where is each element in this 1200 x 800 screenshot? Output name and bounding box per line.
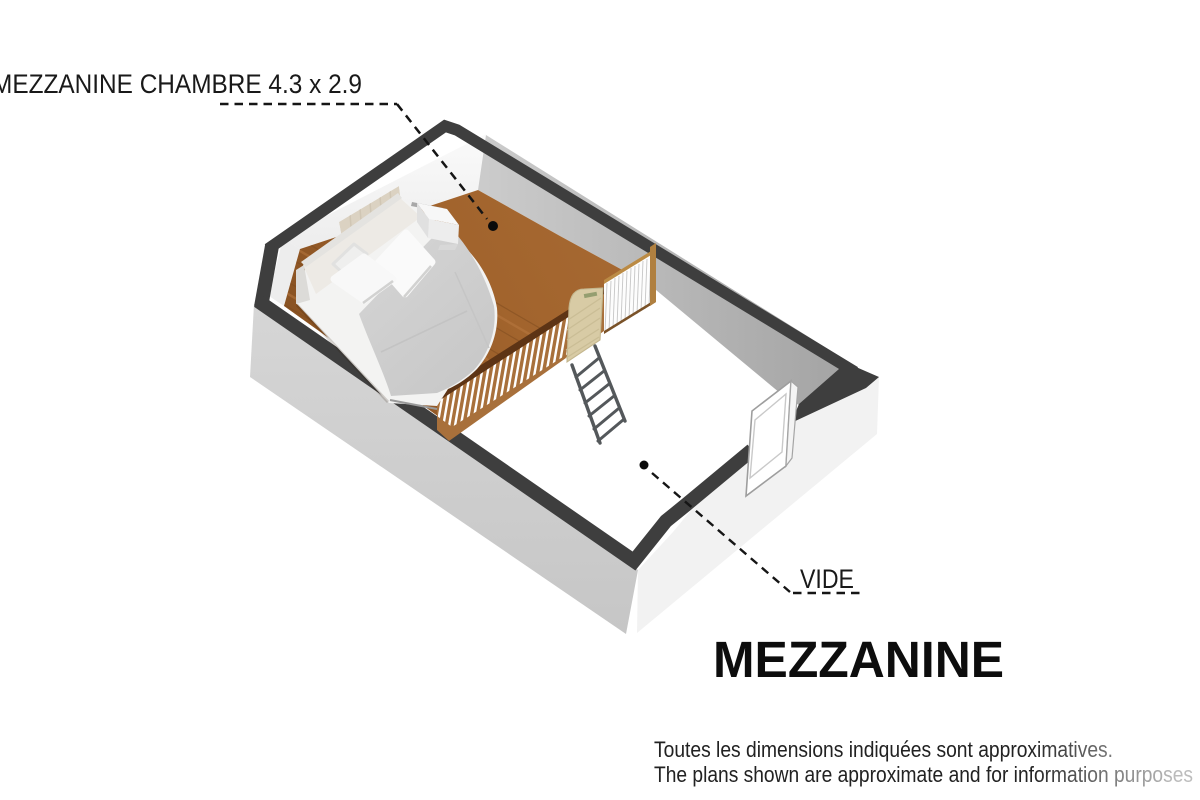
svg-text:MEZZANINE: MEZZANINE (713, 631, 1004, 688)
svg-text:MEZZANINE CHAMBRE 4.3 x 2.9: MEZZANINE CHAMBRE 4.3 x 2.9 (0, 69, 362, 99)
svg-text:VIDE: VIDE (800, 564, 854, 594)
